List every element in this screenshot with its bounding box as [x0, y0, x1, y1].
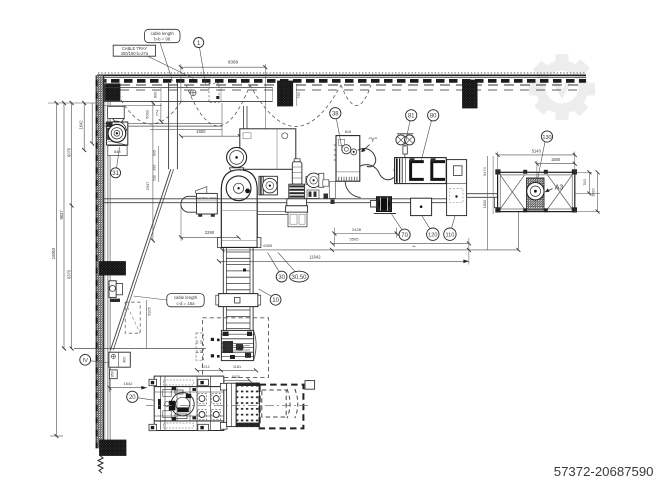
svg-text:57372-20687590: 57372-20687590	[554, 464, 654, 479]
svg-text:30,50: 30,50	[291, 275, 307, 281]
svg-text:605: 605	[152, 150, 156, 156]
svg-text:6370: 6370	[66, 269, 71, 279]
svg-text:9368: 9368	[228, 60, 239, 65]
svg-text:816: 816	[345, 130, 351, 134]
svg-text:1580: 1580	[551, 157, 561, 162]
svg-text:130: 130	[542, 135, 551, 141]
svg-text:5925: 5925	[146, 307, 151, 316]
svg-text:1212: 1212	[201, 365, 209, 369]
svg-text:11642: 11642	[309, 254, 321, 259]
svg-text:848: 848	[114, 149, 121, 154]
svg-text:IV: IV	[82, 358, 88, 364]
svg-text:9474: 9474	[482, 166, 487, 175]
svg-text:A3: A3	[555, 185, 564, 192]
svg-text:30: 30	[278, 275, 285, 281]
svg-text:774: 774	[154, 109, 159, 116]
svg-text:1600: 1600	[590, 188, 595, 197]
svg-text:750: 750	[296, 91, 301, 98]
svg-text:6076: 6076	[66, 147, 71, 157]
svg-text:783: 783	[582, 179, 587, 186]
svg-text:6395: 6395	[263, 243, 273, 248]
svg-text:1600: 1600	[482, 199, 487, 208]
svg-text:HAUBNG TAYAL: HAUBNG TAYAL	[196, 196, 218, 200]
svg-text:20: 20	[129, 395, 136, 401]
svg-text:38: 38	[332, 112, 339, 118]
svg-text:395: 395	[152, 165, 156, 171]
svg-text:5093: 5093	[144, 110, 149, 119]
svg-text:80: 80	[430, 114, 437, 120]
svg-text:c-d = 15a: c-d = 15a	[176, 301, 195, 306]
svg-text:81: 81	[408, 114, 415, 120]
svg-text:16953: 16953	[51, 247, 56, 259]
svg-text:5505: 5505	[350, 237, 360, 242]
svg-text:400: 400	[123, 357, 127, 363]
svg-text:cable length: cable length	[174, 295, 198, 300]
svg-text:110: 110	[445, 232, 454, 238]
svg-text:"Y": "Y"	[368, 137, 377, 144]
svg-text:**: **	[412, 244, 416, 249]
svg-text:950: 950	[111, 371, 115, 377]
svg-text:1: 1	[197, 40, 201, 47]
svg-text:1620: 1620	[232, 375, 240, 379]
svg-text:1181: 1181	[233, 365, 241, 369]
svg-text:5140: 5140	[532, 148, 542, 153]
svg-text:400/150 b=27a: 400/150 b=27a	[121, 51, 149, 56]
svg-text:1642: 1642	[124, 381, 134, 386]
svg-text:70: 70	[401, 233, 408, 239]
svg-text:2290: 2290	[205, 230, 215, 235]
svg-text:2037: 2037	[145, 182, 150, 191]
svg-text:600: 600	[152, 91, 157, 98]
svg-text:120: 120	[428, 232, 437, 238]
svg-text:530: 530	[152, 175, 156, 181]
svg-text:2428: 2428	[352, 227, 362, 232]
svg-text:31: 31	[112, 171, 119, 177]
svg-text:10: 10	[272, 298, 279, 304]
svg-text:1642: 1642	[79, 120, 84, 130]
svg-text:cable length: cable length	[151, 31, 175, 36]
svg-text:9837: 9837	[59, 210, 64, 220]
svg-text:1600: 1600	[196, 129, 206, 134]
svg-text:b-b = 98: b-b = 98	[154, 37, 170, 42]
